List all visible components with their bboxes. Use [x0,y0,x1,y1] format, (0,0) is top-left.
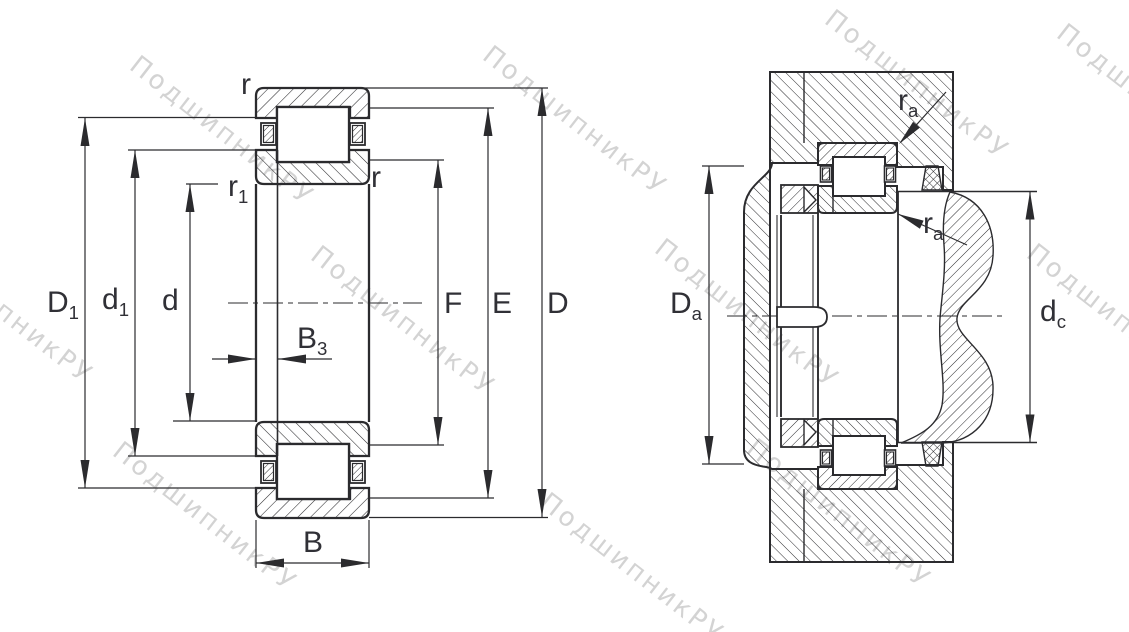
mounted-bearing-bottom [818,419,897,489]
label-E: E [492,289,512,319]
shaft-spacer-top [781,185,818,213]
dim-Da [702,166,744,464]
label-r-inner: r [371,163,381,193]
label-D: D [547,289,569,319]
shaft-break-section [901,192,993,443]
label-r1: r1 [228,172,248,202]
label-ra-top: ra [898,86,918,116]
label-D1: D1 [47,288,79,318]
dim-dc [1026,192,1035,443]
label-B: B [303,528,323,558]
bearing-drawing-page: ПодшипникРУ ПодшипникРУ ПодшипникРУ Подш… [0,0,1129,632]
label-ra-bottom: ra [923,209,943,239]
label-F: F [444,289,462,319]
shaft-center-pin [777,307,827,327]
label-d1: d1 [102,285,129,315]
label-d: d [162,286,179,316]
seal-top [922,166,942,190]
label-Da: Da [670,289,702,319]
roller-top [277,107,349,162]
label-dc: dc [1040,297,1066,327]
label-r-top: r [241,70,251,100]
shaft-spacer-bottom [781,419,818,447]
dim-B3 [212,355,332,364]
seal-bottom [922,442,942,466]
right-diagram [702,72,1037,562]
roller-bottom [277,444,349,499]
mounted-bearing-top [818,143,897,213]
label-B3: B3 [297,324,327,354]
